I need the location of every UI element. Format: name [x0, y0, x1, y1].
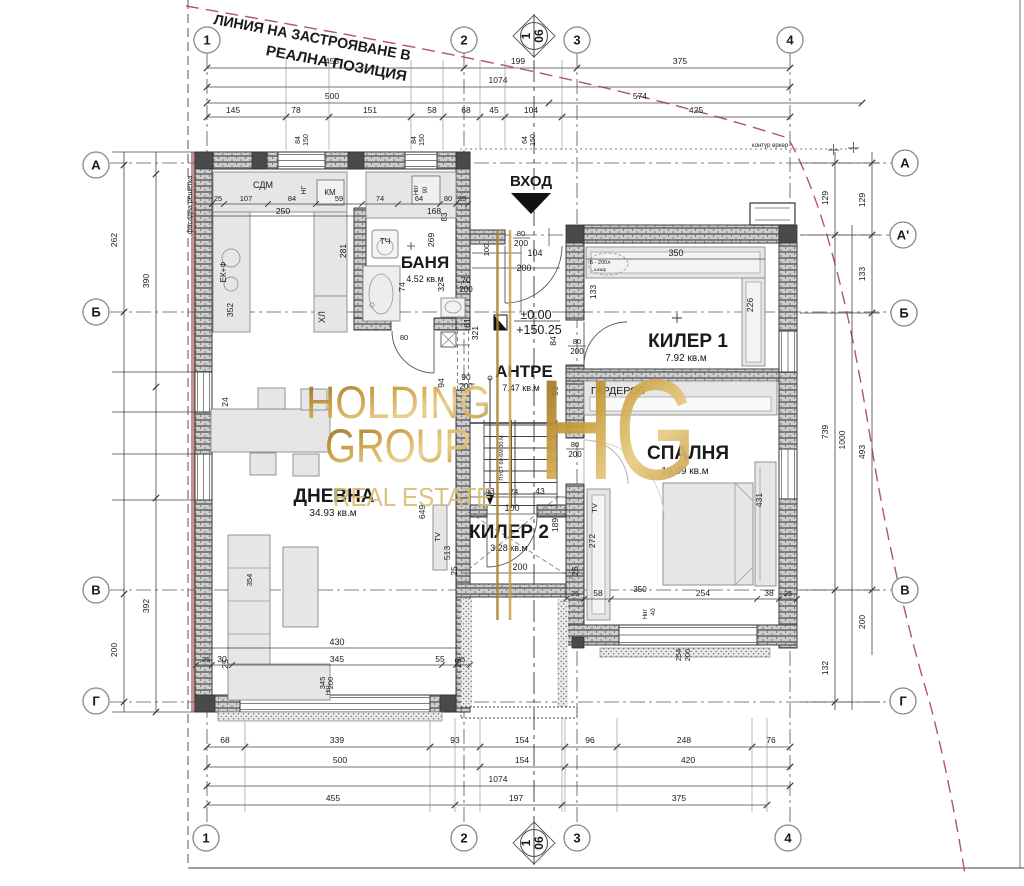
svg-text:HG: HG	[538, 349, 697, 509]
svg-text:38: 38	[764, 588, 774, 598]
svg-text:Б: Б	[899, 306, 908, 321]
svg-text:+150.25: +150.25	[516, 323, 562, 337]
svg-text:ТV: ТV	[433, 532, 442, 542]
svg-text:А: А	[900, 156, 910, 171]
svg-text:262: 262	[109, 233, 119, 247]
svg-text:281: 281	[338, 244, 348, 258]
svg-text:493: 493	[857, 445, 867, 459]
svg-text:25: 25	[571, 589, 579, 598]
svg-text:200: 200	[857, 615, 867, 629]
svg-text:78: 78	[291, 105, 301, 115]
svg-text:425: 425	[689, 105, 703, 115]
svg-text:100: 100	[482, 244, 491, 257]
svg-text:84: 84	[548, 336, 558, 346]
svg-text:40: 40	[650, 608, 657, 616]
svg-text:В: В	[900, 583, 909, 598]
svg-text:3: 3	[573, 831, 580, 846]
svg-text:375: 375	[672, 793, 686, 803]
svg-text:420: 420	[681, 755, 695, 765]
svg-text:200: 200	[512, 562, 527, 572]
svg-text:154: 154	[515, 755, 529, 765]
svg-text:ЕК+Ф: ЕК+Ф	[219, 262, 228, 283]
svg-text:25: 25	[449, 566, 459, 576]
svg-text:96: 96	[585, 735, 595, 745]
svg-text:06: 06	[532, 836, 546, 850]
svg-text:А: А	[91, 158, 101, 173]
svg-text:55: 55	[435, 654, 445, 664]
svg-text:СДМ: СДМ	[253, 180, 273, 190]
svg-text:84: 84	[288, 194, 296, 203]
svg-text:339: 339	[330, 735, 344, 745]
svg-text:±0.00: ±0.00	[520, 308, 551, 322]
svg-text:254: 254	[696, 588, 710, 598]
svg-text:GROUP: GROUP	[325, 419, 471, 472]
svg-text:272: 272	[587, 534, 597, 548]
svg-text:129: 129	[820, 191, 830, 205]
svg-text:ХЛ: ХЛ	[317, 311, 327, 323]
svg-text:25: 25	[214, 194, 222, 203]
svg-text:250: 250	[276, 206, 290, 216]
svg-text:133: 133	[588, 285, 598, 299]
svg-text:25: 25	[202, 655, 210, 664]
svg-text:500: 500	[325, 91, 339, 101]
svg-text:80: 80	[573, 337, 581, 346]
svg-text:151: 151	[363, 105, 377, 115]
svg-text:ПУСТ 60.6М 30.М: ПУСТ 60.6М 30.М	[499, 435, 505, 481]
svg-text:74: 74	[376, 194, 384, 203]
svg-text:Г: Г	[92, 694, 100, 709]
svg-text:1000: 1000	[837, 430, 847, 449]
svg-text:104: 104	[527, 248, 542, 258]
svg-text:84: 84	[295, 136, 302, 144]
svg-text:133: 133	[857, 267, 867, 281]
svg-text:58: 58	[427, 105, 437, 115]
svg-text:фасадна решетка: фасадна решетка	[187, 176, 194, 234]
svg-text:70: 70	[461, 275, 471, 285]
svg-text:100: 100	[504, 503, 519, 513]
svg-text:45: 45	[489, 105, 499, 115]
svg-text:Г: Г	[899, 694, 907, 709]
svg-text:4: 4	[786, 33, 794, 48]
svg-text:145: 145	[226, 105, 240, 115]
svg-text:76: 76	[766, 735, 776, 745]
svg-text:455: 455	[325, 56, 339, 66]
svg-text:430: 430	[329, 637, 344, 647]
svg-text:2: 2	[460, 33, 467, 48]
svg-text:392: 392	[141, 599, 151, 613]
svg-text:Нпт: Нпт	[643, 609, 649, 620]
svg-text:1: 1	[202, 831, 209, 846]
svg-text:шкаф: шкаф	[594, 267, 606, 272]
svg-text:А': А'	[897, 228, 909, 243]
svg-text:80: 80	[517, 229, 525, 238]
svg-text:06: 06	[532, 29, 546, 43]
svg-text:68: 68	[220, 735, 230, 745]
svg-text:80: 80	[444, 194, 452, 203]
svg-text:4: 4	[784, 831, 792, 846]
svg-text:контур еркер: контур еркер	[752, 143, 789, 149]
svg-text:REAL ESTATE: REAL ESTATE	[333, 483, 492, 512]
svg-text:513: 513	[442, 546, 452, 560]
svg-text:ВХОД: ВХОД	[510, 173, 552, 190]
svg-text:390: 390	[141, 274, 151, 288]
svg-text:354: 354	[245, 574, 254, 587]
svg-text:254: 254	[674, 649, 683, 662]
svg-text:59: 59	[335, 194, 343, 203]
svg-text:350: 350	[633, 585, 647, 594]
svg-text:2: 2	[460, 831, 467, 846]
svg-text:БАНЯ: БАНЯ	[401, 253, 449, 272]
svg-text:104: 104	[524, 105, 538, 115]
svg-text:455: 455	[326, 793, 340, 803]
svg-text:32: 32	[436, 282, 446, 292]
svg-text:197: 197	[509, 793, 523, 803]
svg-text:1: 1	[519, 839, 533, 846]
svg-text:30: 30	[217, 654, 227, 664]
svg-text:226: 226	[745, 298, 755, 312]
svg-text:150: 150	[530, 134, 537, 146]
svg-text:90: 90	[423, 186, 429, 193]
svg-text:574: 574	[633, 91, 647, 101]
svg-text:25: 25	[570, 566, 580, 576]
svg-text:ТЧ: ТЧ	[380, 236, 391, 246]
svg-text:84: 84	[411, 136, 418, 144]
svg-text:25: 25	[784, 589, 792, 598]
svg-text:25: 25	[458, 194, 466, 203]
svg-text:3: 3	[573, 33, 580, 48]
svg-text:350: 350	[668, 248, 683, 258]
svg-text:500: 500	[333, 755, 347, 765]
svg-text:7.47 кв.м: 7.47 кв.м	[502, 383, 539, 393]
svg-text:200: 200	[516, 263, 531, 273]
svg-text:200: 200	[459, 285, 473, 294]
svg-text:107: 107	[240, 194, 253, 203]
svg-text:200: 200	[683, 649, 692, 662]
svg-text:321: 321	[470, 326, 480, 340]
svg-text:64: 64	[522, 136, 529, 144]
svg-text:24: 24	[220, 397, 230, 407]
svg-text:129: 129	[857, 193, 867, 207]
svg-text:64: 64	[415, 194, 423, 203]
svg-text:58: 58	[593, 588, 603, 598]
svg-text:739: 739	[820, 425, 830, 439]
svg-text:189: 189	[550, 518, 560, 532]
svg-text:83: 83	[440, 212, 449, 221]
svg-text:150: 150	[303, 134, 310, 146]
svg-text:80: 80	[400, 333, 408, 342]
svg-text:269: 269	[426, 233, 436, 247]
svg-text:431: 431	[754, 493, 764, 507]
svg-text:1: 1	[203, 33, 210, 48]
svg-text:Б - 200л: Б - 200л	[590, 260, 611, 266]
svg-text:199: 199	[511, 56, 525, 66]
svg-text:345: 345	[330, 654, 344, 664]
svg-text:150: 150	[419, 134, 426, 146]
svg-text:68: 68	[461, 105, 471, 115]
svg-text:1074: 1074	[489, 774, 508, 784]
svg-text:132: 132	[820, 661, 830, 675]
svg-text:154: 154	[515, 735, 529, 745]
svg-text:200: 200	[109, 643, 119, 657]
svg-text:74: 74	[397, 282, 407, 292]
svg-text:352: 352	[225, 303, 235, 317]
svg-text:375: 375	[673, 56, 687, 66]
svg-text:200: 200	[514, 238, 528, 248]
svg-text:В: В	[91, 583, 100, 598]
svg-text:Б: Б	[91, 305, 100, 320]
svg-text:248: 248	[677, 735, 691, 745]
svg-text:1: 1	[519, 32, 533, 39]
svg-text:НГ: НГ	[301, 185, 308, 194]
svg-text:Нпт: Нпт	[326, 685, 332, 696]
